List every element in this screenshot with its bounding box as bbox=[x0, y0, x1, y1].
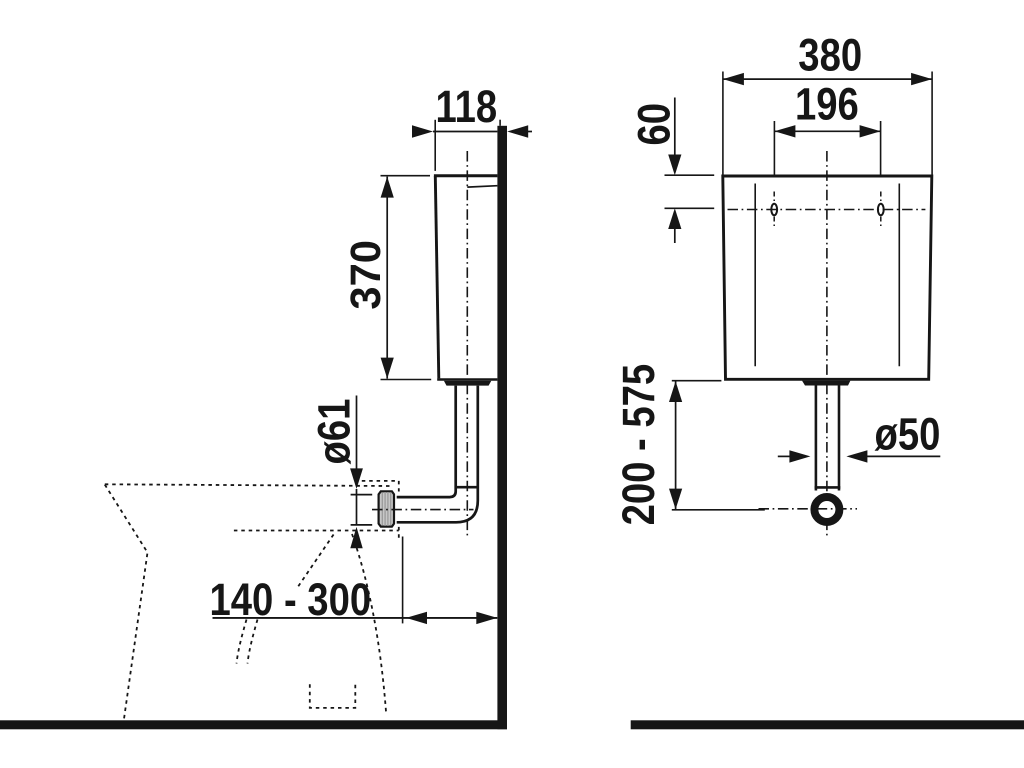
svg-text:380: 380 bbox=[798, 30, 862, 81]
svg-text:60: 60 bbox=[628, 103, 679, 146]
svg-text:ø61: ø61 bbox=[308, 399, 359, 465]
svg-text:370: 370 bbox=[342, 240, 390, 310]
svg-text:200 - 575: 200 - 575 bbox=[613, 364, 664, 526]
svg-text:140 - 300: 140 - 300 bbox=[210, 574, 372, 625]
svg-text:ø50: ø50 bbox=[875, 409, 941, 460]
svg-text:118: 118 bbox=[435, 81, 497, 132]
svg-text:196: 196 bbox=[795, 79, 859, 130]
